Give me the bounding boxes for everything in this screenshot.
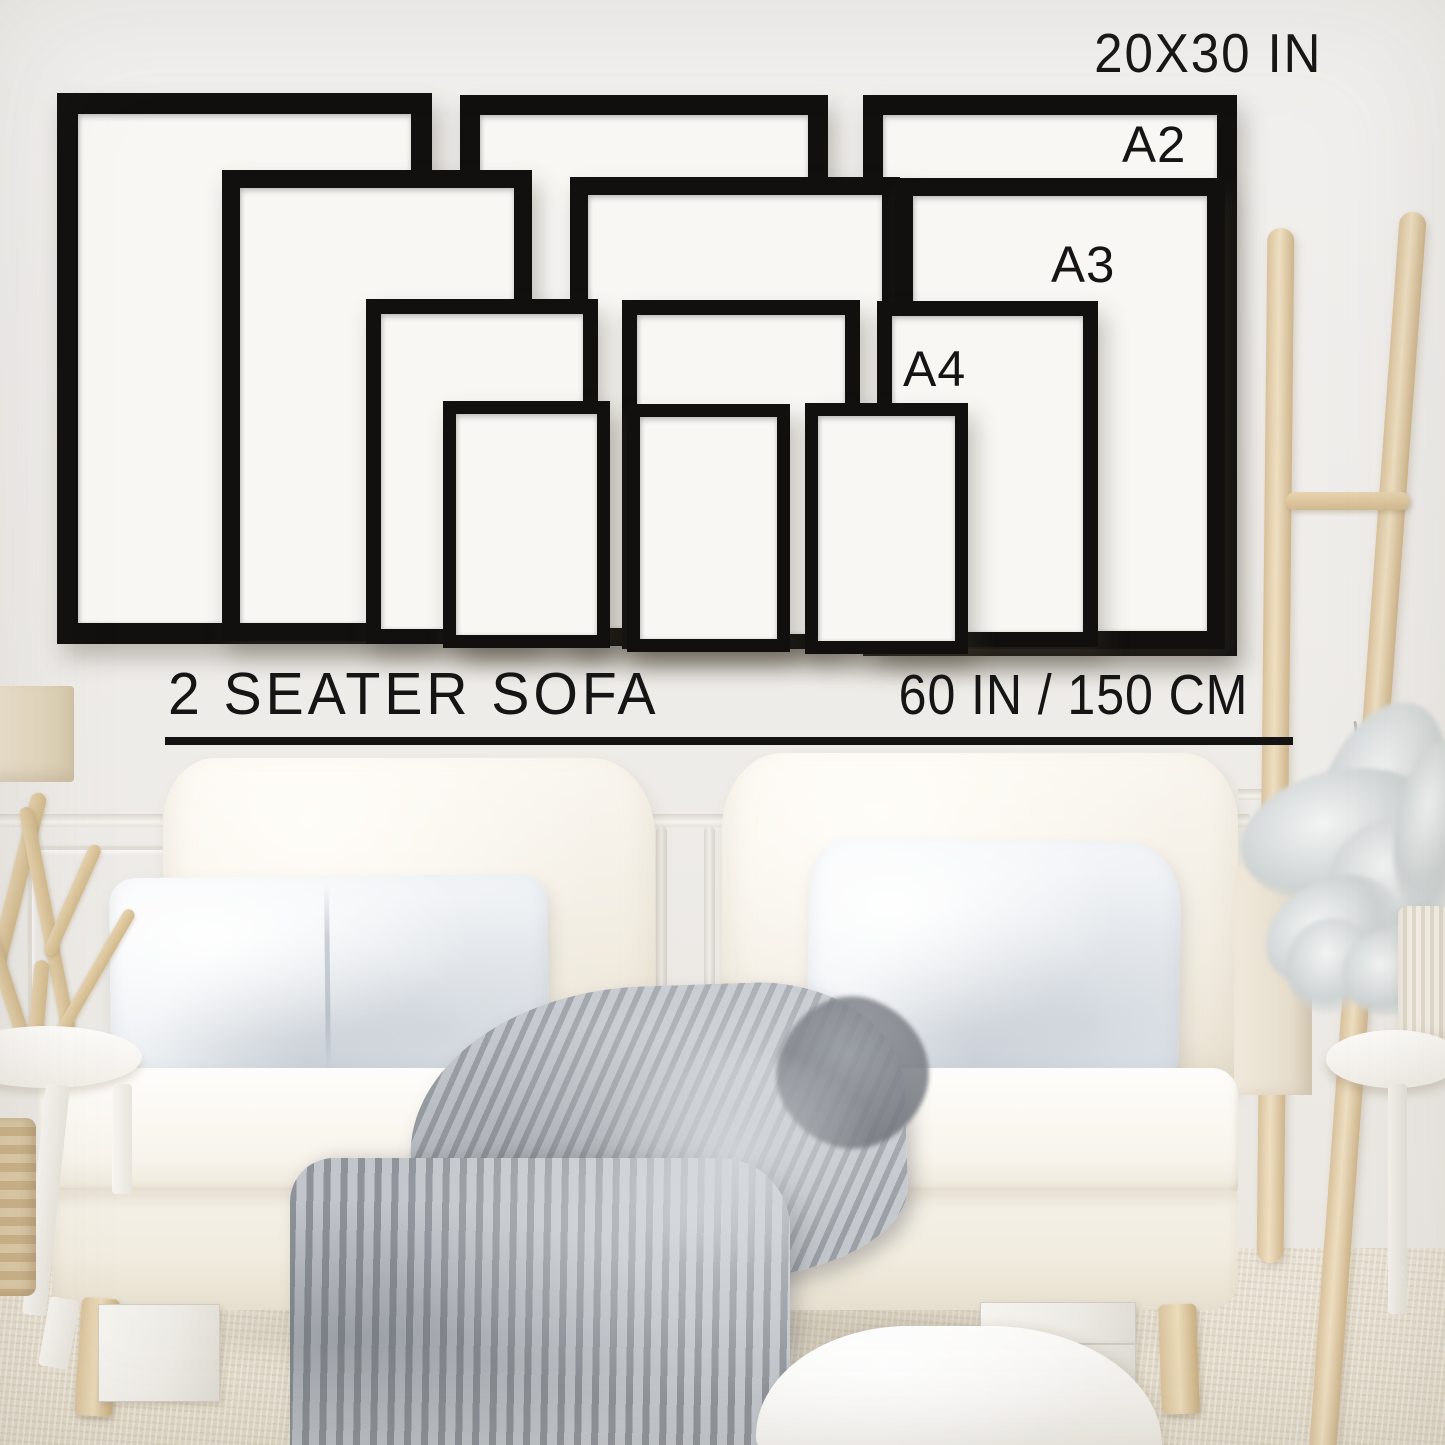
storage-box-under-sofa	[98, 1304, 220, 1402]
ribbed-vase	[1398, 906, 1445, 1046]
sofa-leg-right	[1158, 1303, 1200, 1414]
sofa-size-label: 2 SEATER SOFA	[168, 665, 659, 724]
picture-frame-a4-right	[805, 403, 968, 654]
knit-blanket-highlight	[590, 1050, 880, 1280]
picture-frame-a4-left	[443, 401, 610, 648]
side-table-right-leg	[1388, 1084, 1407, 1314]
sofa-width-label: 60 IN / 150 CM	[898, 667, 1248, 724]
size-label-a2: A2	[1122, 119, 1186, 170]
size-label-20x30: 20X30 IN	[1094, 26, 1322, 81]
size-label-a4: A4	[903, 344, 966, 394]
picture-frame-a4-middle	[627, 404, 790, 652]
lampshade	[0, 686, 74, 782]
sofa-width-underline	[165, 737, 1293, 745]
size-guide-photo: 20X30 IN A2 A3 A4 2 SEATER SOFA 60 IN / …	[0, 0, 1445, 1445]
side-table-left-leg	[112, 1084, 132, 1194]
woven-basket	[0, 1118, 36, 1296]
size-label-a3: A3	[1051, 239, 1115, 290]
